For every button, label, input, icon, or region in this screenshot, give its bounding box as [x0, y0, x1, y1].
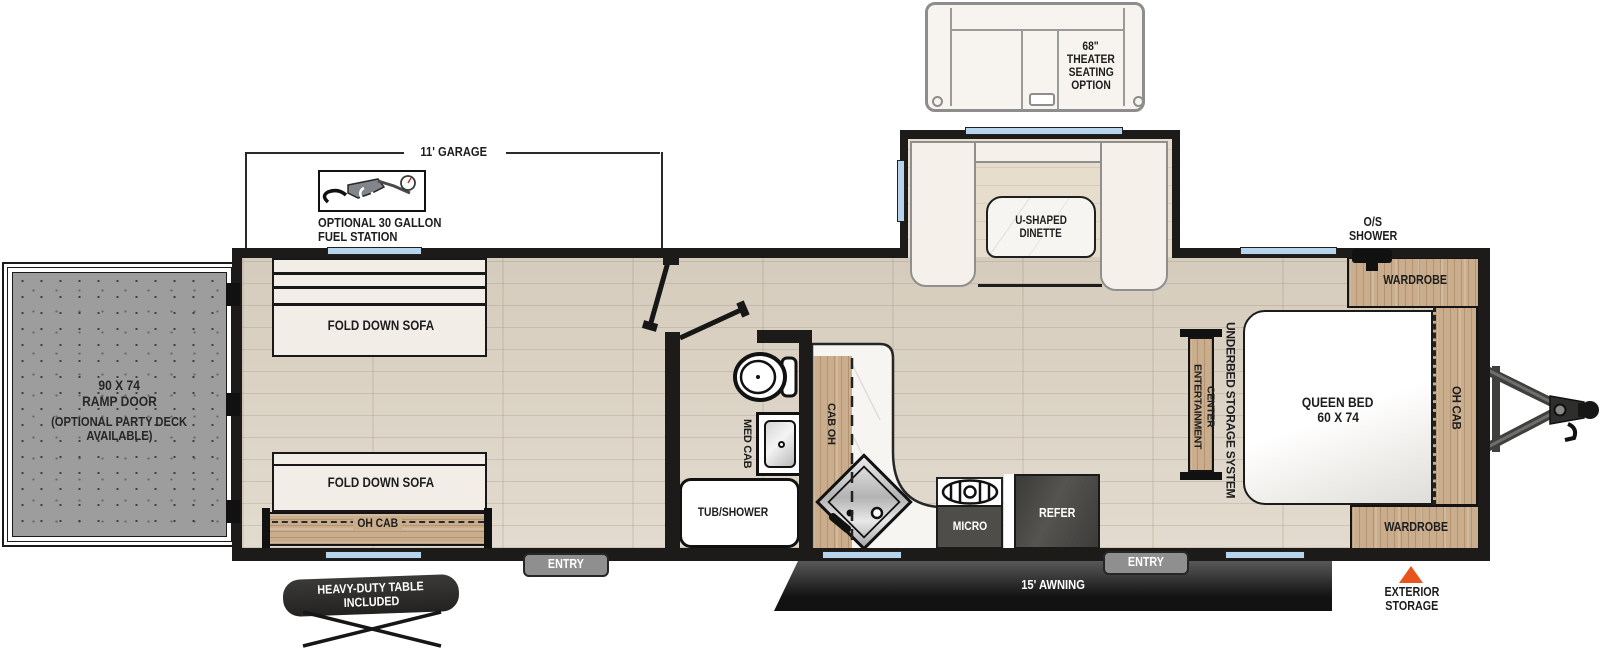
wall-front [1478, 248, 1490, 561]
garage-partition-stub [663, 248, 679, 265]
bath-sink [764, 420, 796, 468]
ramp-hinge-top [226, 283, 240, 306]
window [1240, 247, 1337, 255]
dinette-left-bench [910, 141, 976, 287]
shower-head-nozzle [1366, 262, 1378, 271]
trailer-hitch-icon [1484, 366, 1599, 452]
garage-dim-leg-right [661, 152, 663, 248]
kitchen-cab-oh-label: CAB OH [823, 388, 839, 460]
window [325, 551, 422, 559]
ex​terior-storage-label: EXTERIOR STORAGE [1356, 585, 1468, 615]
garage-dimension-label: 11' GARAGE [402, 143, 506, 161]
heavy-duty-table-label: HEAVY-DUTY TABLE INCLUDED [286, 577, 455, 615]
theater-cupholder [1029, 93, 1055, 106]
wardrobe-top-label: WARDROBE [1360, 271, 1470, 291]
fuel-station-label: OPTIONAL 30 GALLON FUEL STATION [318, 216, 468, 244]
ramp-hinge-bottom [226, 500, 240, 523]
dinette-threshold [978, 284, 1102, 287]
garage-dim-line-right [506, 152, 660, 154]
microwave-label: MICRO [936, 518, 1003, 536]
entertainment-label-line1: ENTERTAINMENT [1191, 342, 1204, 472]
tub-shower-label: TUB/SHOWER [684, 503, 782, 523]
med-cab-label: MED CAB [739, 412, 755, 476]
queen-bed-label: QUEEN BED 60 X 74 [1258, 392, 1418, 428]
sofa-top-label: FOLD DOWN SOFA [288, 316, 473, 336]
table-legs [303, 612, 441, 646]
sofa-bottom-label: FOLD DOWN SOFA [288, 473, 473, 493]
bath-wall-left [665, 332, 680, 548]
window [965, 127, 1123, 135]
shower-head-icon [1352, 249, 1392, 263]
exterior-storage-marker [1399, 566, 1423, 583]
cooktop [936, 477, 1003, 507]
awning-label: 15' AWNING [774, 575, 1332, 595]
window [822, 551, 902, 559]
theater-seating-option: 68" THEATER SEATING OPTION [925, 2, 1145, 112]
bath-sink-drain [778, 441, 785, 448]
dinette-label: U-SHAPED DINETTE [994, 206, 1088, 250]
garage-ohcab-label: OH CAB [330, 515, 426, 533]
underbed-storage-label: UNDERBED STORAGE SYSTEM [1222, 315, 1239, 505]
fuel-pump-icon [320, 172, 423, 209]
floorplan: 68" THEATER SEATING OPTION 11' GARAGE OP… [0, 0, 1600, 649]
entry-right-label: ENTRY [1103, 554, 1189, 572]
wardrobe-bottom-label: WARDROBE [1360, 518, 1472, 538]
theater-back-line [950, 29, 1125, 31]
entertainment-cap-bottom [1180, 472, 1222, 480]
bed-ohcab-label: OH CAB [1448, 372, 1463, 444]
window [1225, 551, 1305, 559]
window [897, 160, 905, 222]
garage-dim-line-left [246, 152, 404, 154]
outside-shower-label: O/S SHOWER [1323, 214, 1423, 246]
entertainment-label-line2: CENTER [1204, 355, 1217, 459]
theater-recliner-dot-right [1133, 96, 1144, 107]
entry-left-label: ENTRY [523, 556, 609, 574]
garage-dim-leg-left [245, 152, 247, 248]
window [327, 247, 422, 255]
ramp-hinge-middle [226, 393, 240, 416]
garage-ohcab-post-right [484, 508, 492, 548]
entertainment-cap-top [1180, 329, 1222, 337]
dinette-wall-right [1172, 130, 1180, 258]
appliance-gap [1004, 474, 1014, 549]
fuel-station-box [318, 170, 426, 212]
fold-down-sofa-top [272, 258, 487, 357]
dinette-right-bench [1100, 141, 1168, 291]
ramp-door-label: 90 X 74 RAMP DOOR (OPTIONAL PARTY DECK A… [10, 370, 228, 452]
theater-console-left [1021, 29, 1023, 109]
garage-ohcab-post-left [262, 508, 270, 548]
theater-seating-label: 68" THEATER SEATING OPTION [1058, 35, 1124, 97]
bath-wall-top [757, 330, 812, 343]
refrigerator-label: REFER [1014, 505, 1100, 523]
bath-wall-right [799, 343, 812, 548]
theater-armrest-left [950, 8, 952, 106]
theater-recliner-dot-left [932, 96, 943, 107]
med-cab [756, 412, 804, 476]
